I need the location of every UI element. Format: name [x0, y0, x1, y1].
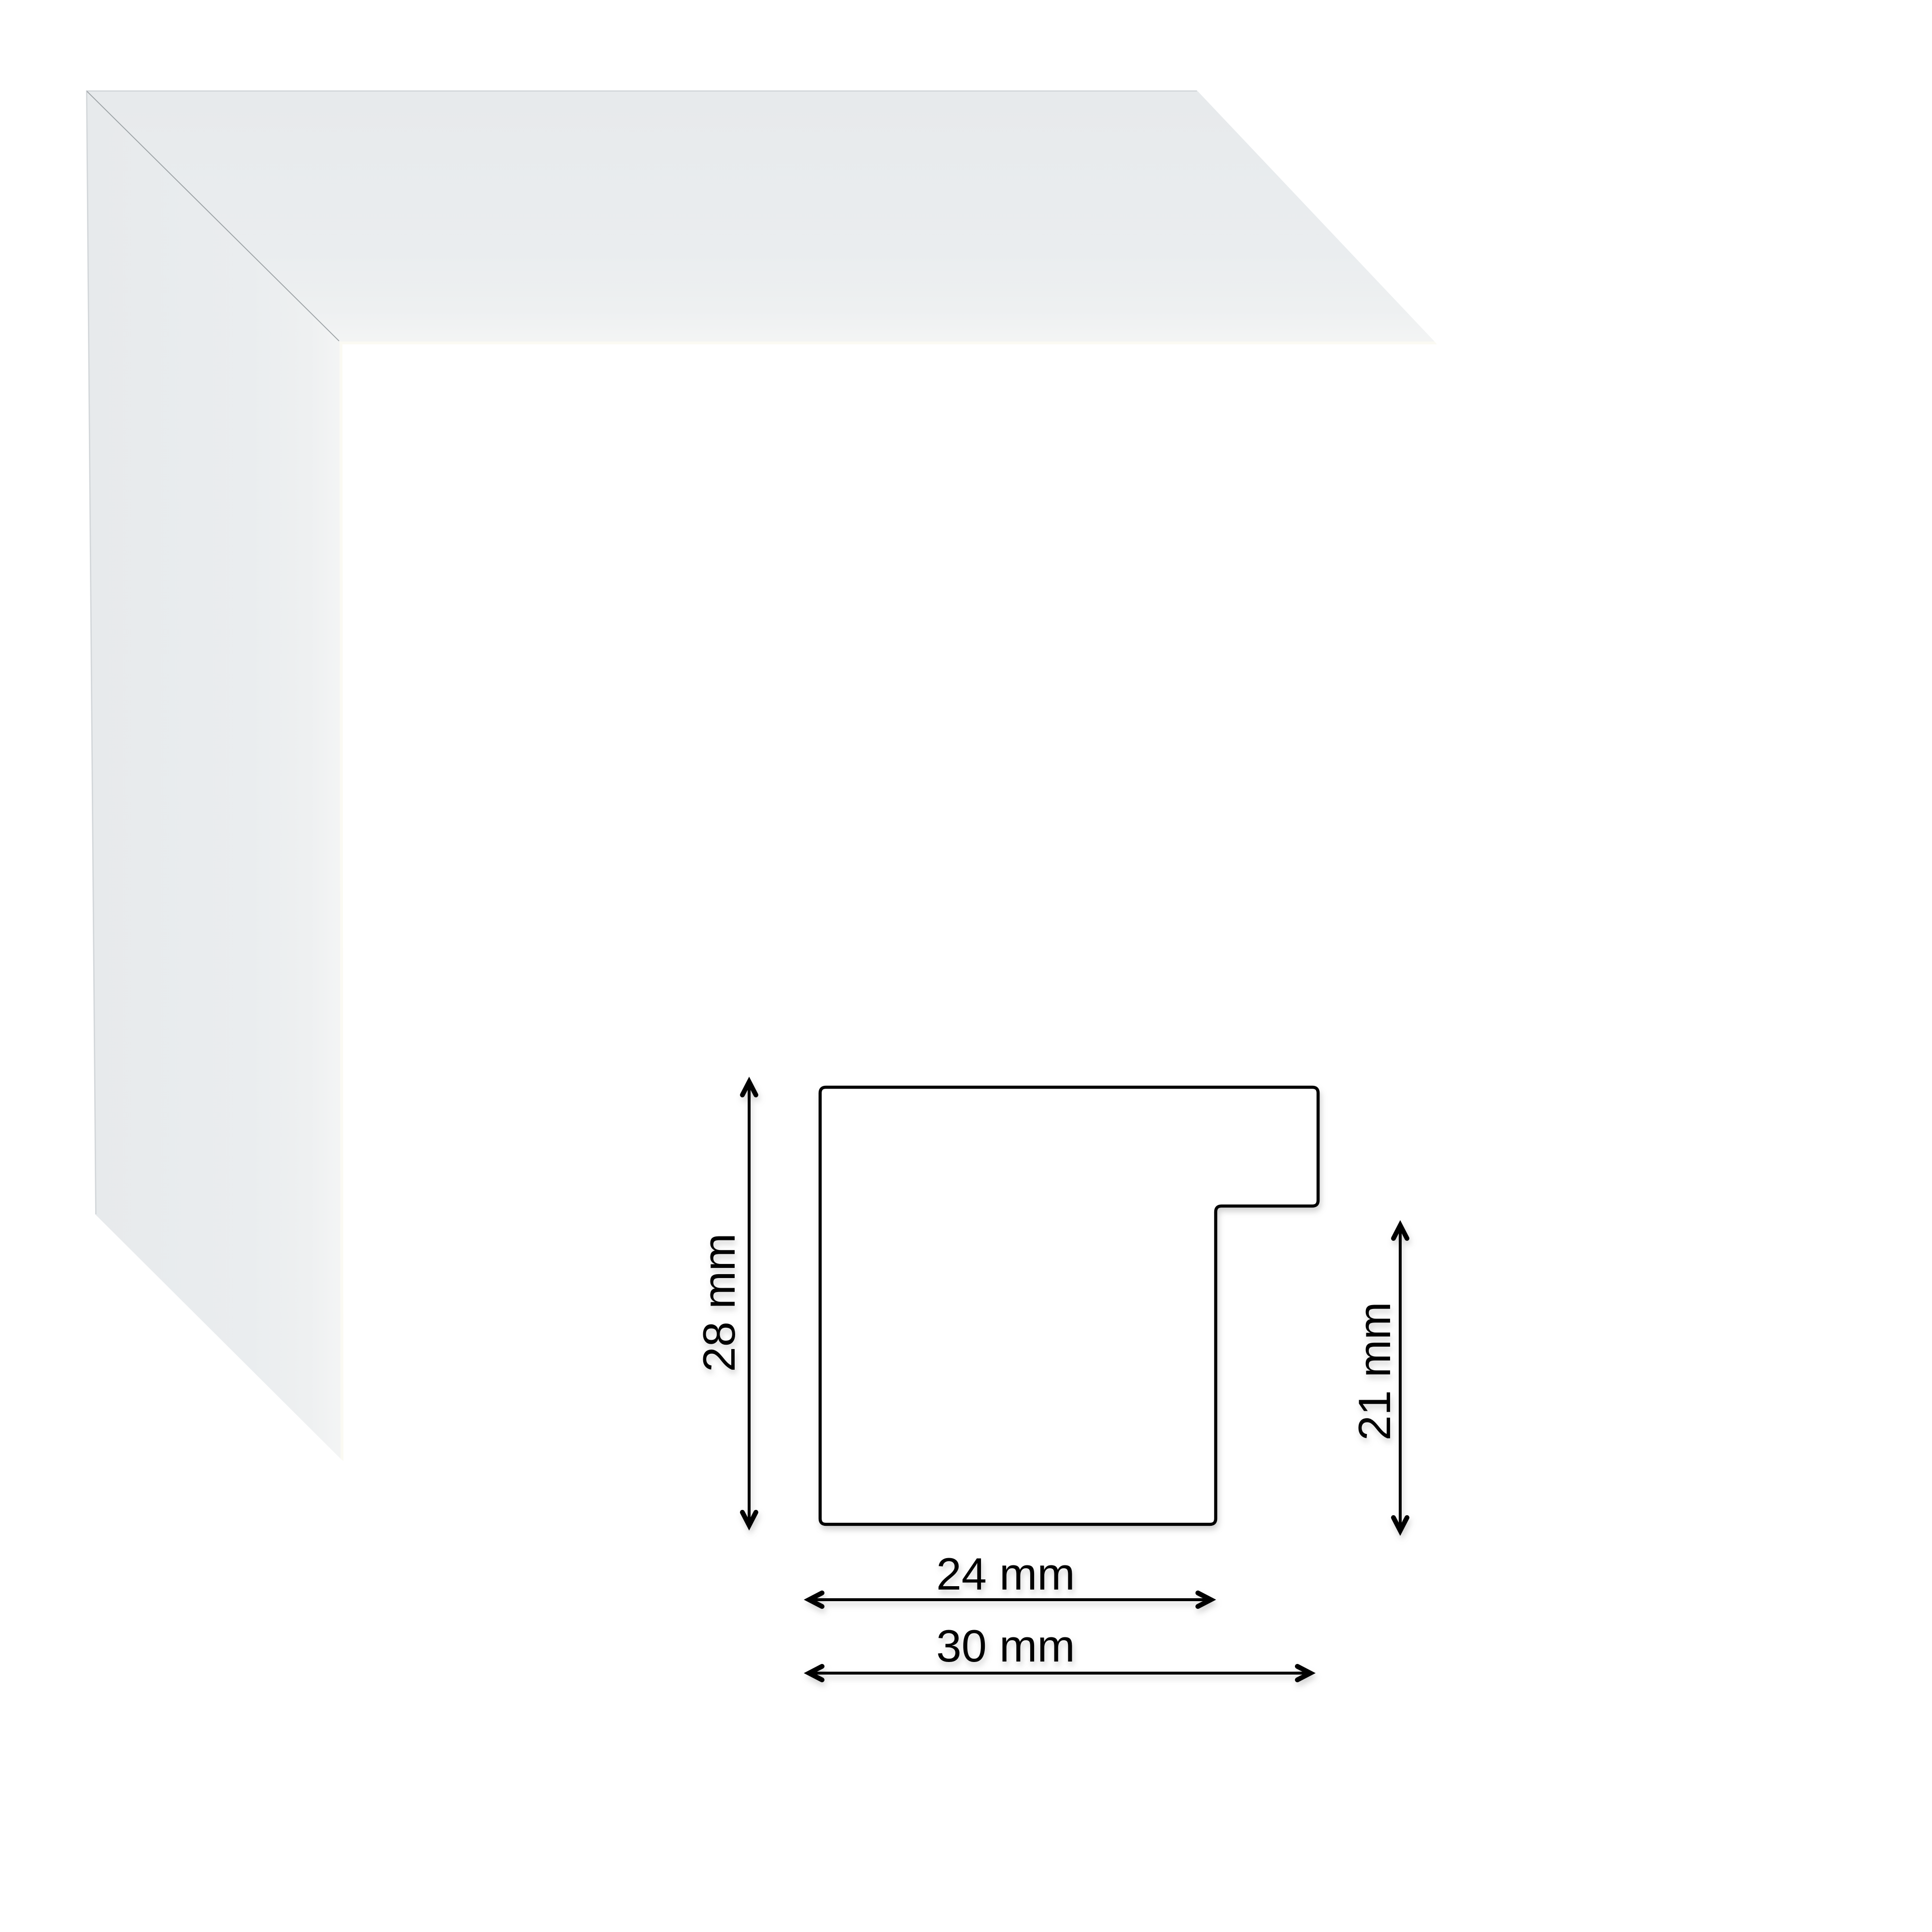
svg-text:28 mm: 28 mm	[694, 1233, 744, 1372]
svg-text:21 mm: 21 mm	[1349, 1302, 1400, 1440]
svg-text:30 mm: 30 mm	[936, 1620, 1075, 1671]
svg-text:24 mm: 24 mm	[936, 1548, 1075, 1599]
